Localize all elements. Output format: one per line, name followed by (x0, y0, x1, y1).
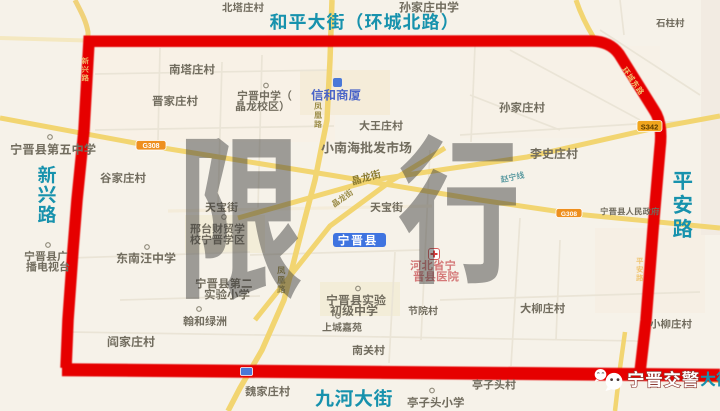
svg-text:G308: G308 (561, 211, 577, 218)
svg-text:S342: S342 (641, 122, 659, 131)
svg-text:G308: G308 (142, 143, 159, 150)
